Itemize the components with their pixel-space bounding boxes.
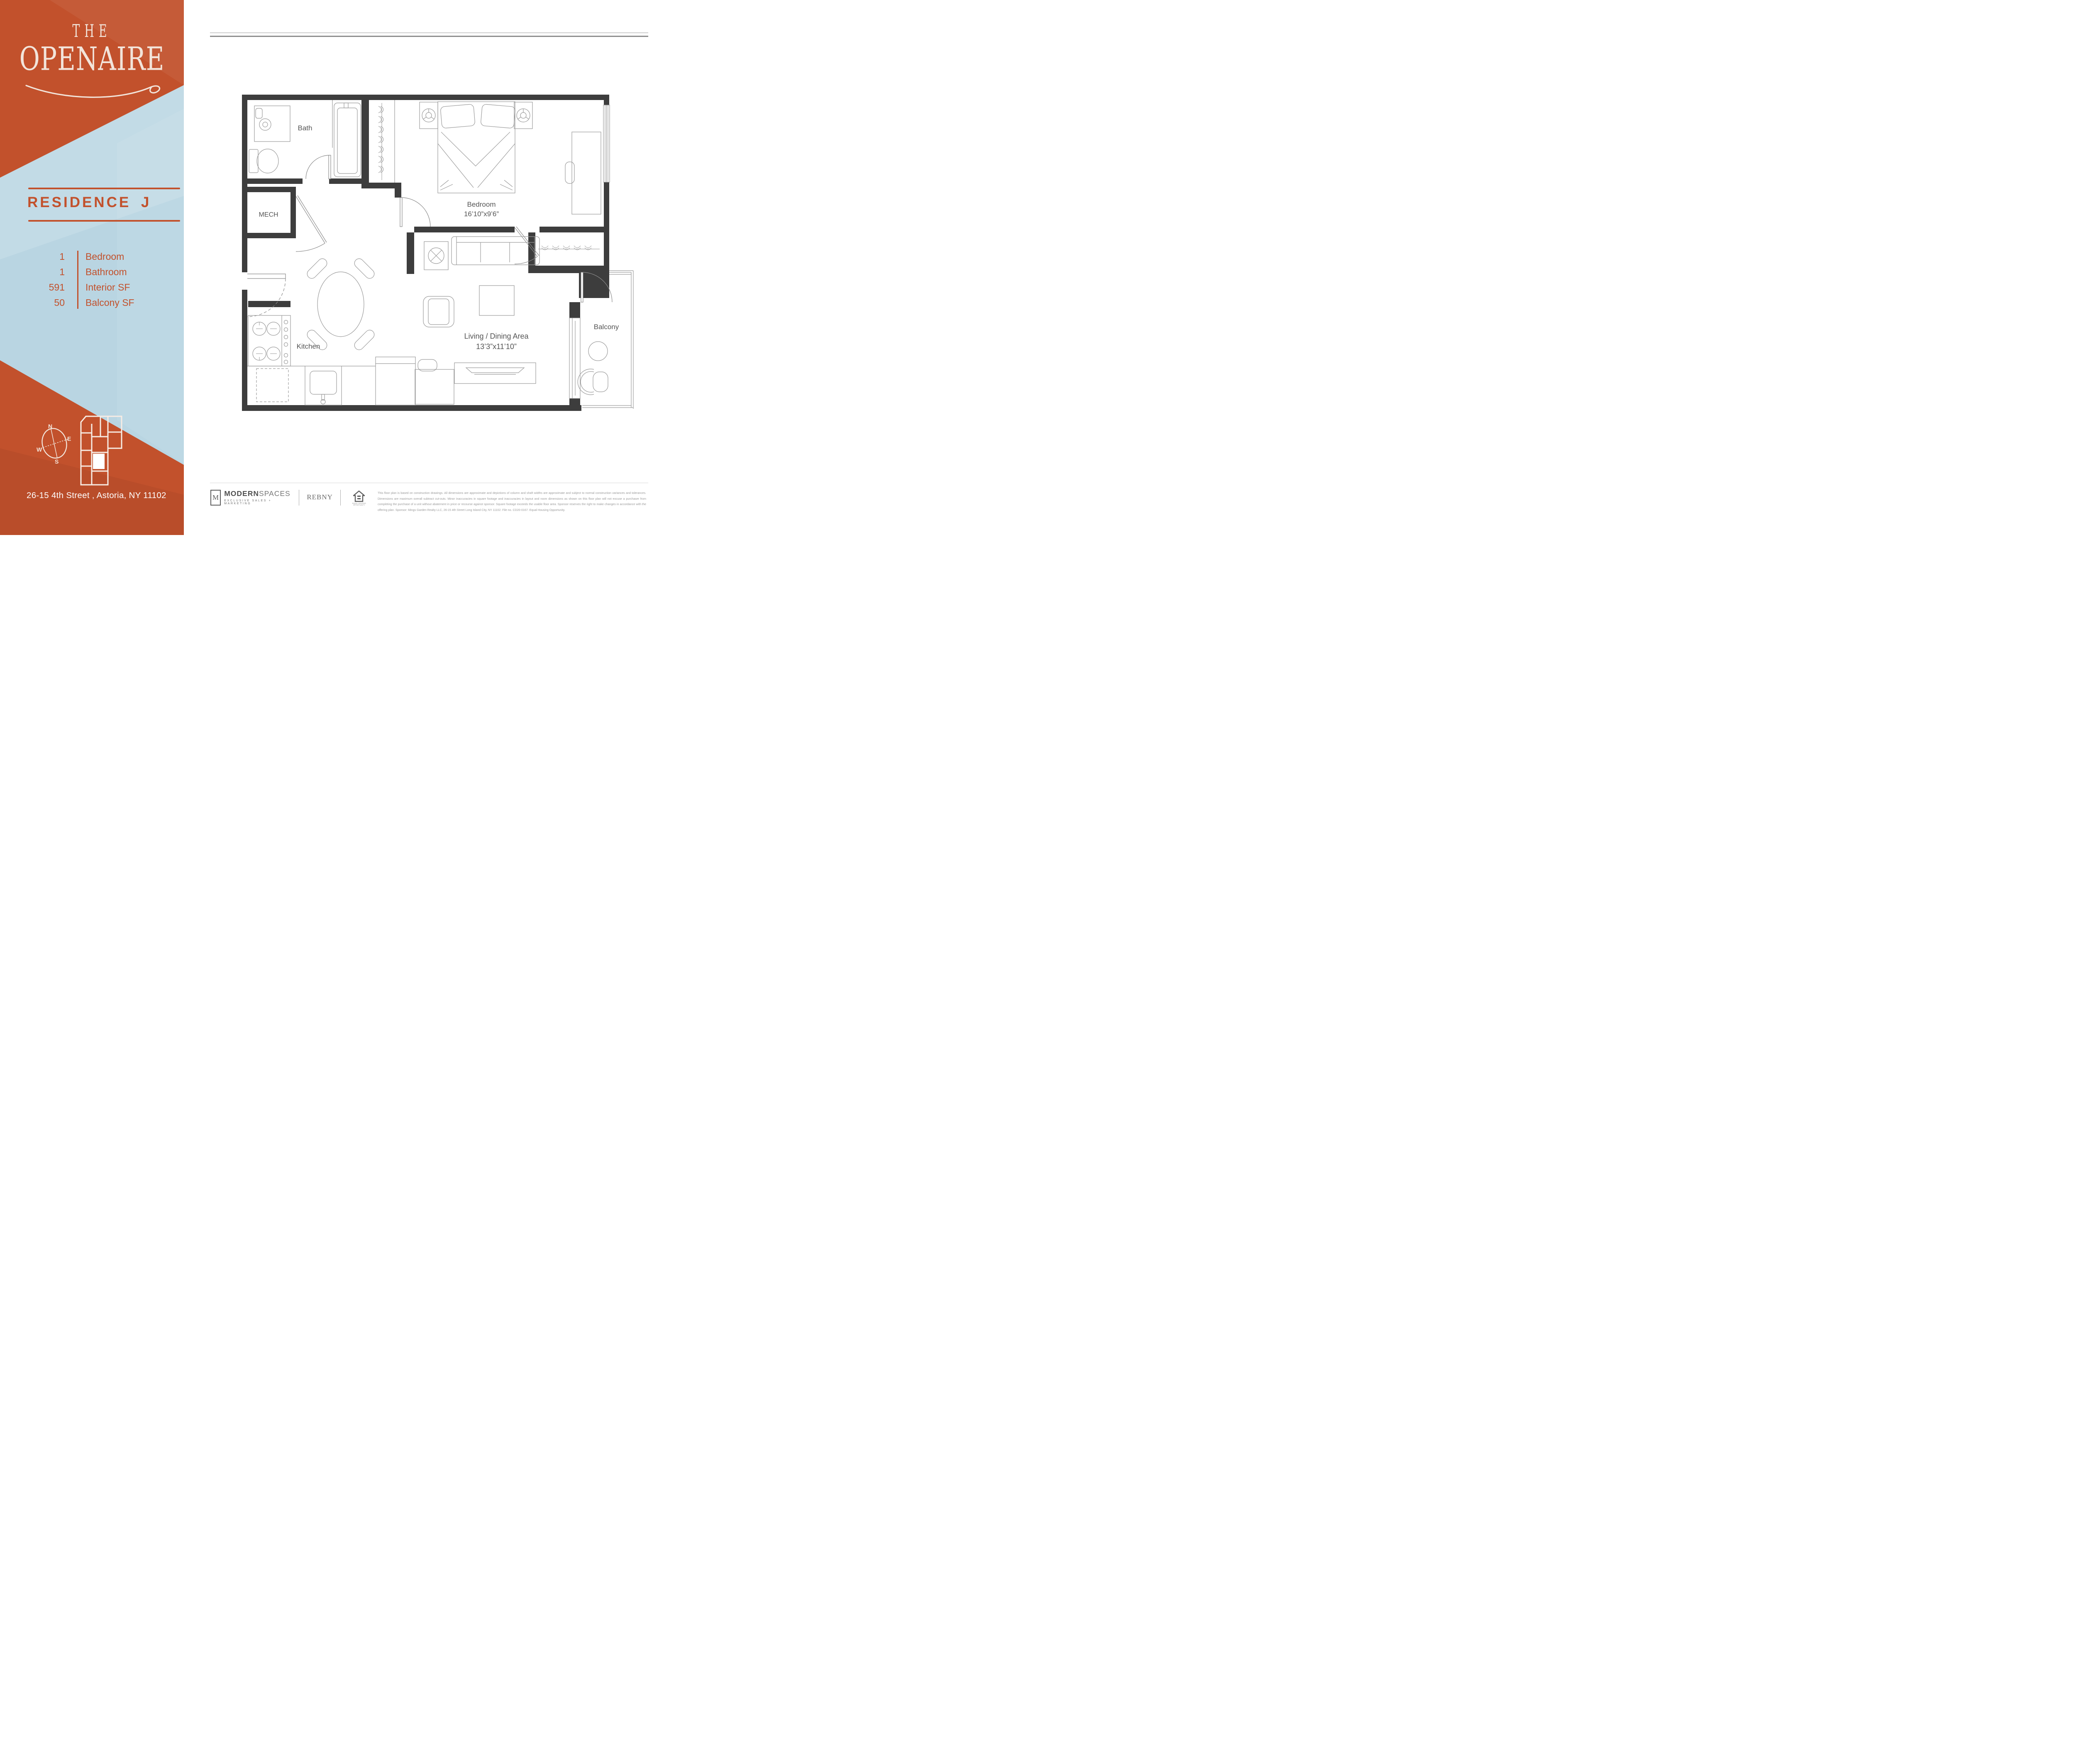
modernspaces-bold: MODERN: [224, 489, 259, 498]
stat-value: 50: [16, 297, 75, 308]
pillow: [481, 104, 515, 129]
title-rule-bottom: [28, 220, 180, 222]
footer-rule: [210, 483, 648, 483]
compass-n: N: [48, 423, 52, 430]
tv: [466, 368, 524, 374]
tv-console: [454, 363, 536, 384]
footer-divider: [299, 490, 299, 506]
compass-icon: N E W S: [37, 423, 72, 464]
bed: [438, 102, 515, 193]
sink-counter: [305, 366, 342, 405]
toilet-bowl: [257, 149, 278, 173]
stat-row-bathroom: 1 Bathroom: [16, 264, 153, 280]
blanket-fold: [441, 132, 510, 166]
refrigerator: [376, 357, 415, 405]
side-desk: [415, 369, 454, 404]
kitchen-sink: [310, 371, 337, 394]
sidebar: THE OPENAIRE RESIDENCE J 1 Bedroom 1 Bat…: [0, 0, 184, 535]
living-furniture: [415, 237, 539, 404]
stat-row-balcony-sf: 50 Balcony SF: [16, 295, 153, 310]
floorplan-sheet: THE OPENAIRE RESIDENCE J 1 Bedroom 1 Bat…: [0, 0, 650, 535]
armchair: [423, 296, 454, 327]
residence-title: RESIDENCE J: [27, 194, 181, 211]
bath-fixtures: [249, 103, 361, 177]
unit-j-highlight: [93, 454, 105, 469]
walls: [242, 95, 609, 411]
modernspaces-tagline: EXCLUSIVE SALES + MARKETING: [224, 499, 291, 505]
equal-housing-block: EQUAL HOUSING OPPORTUNITY: [348, 491, 370, 506]
label-bedroom-dims: 16’10”x9’6”: [464, 210, 499, 218]
modernspaces-light: SPACES: [259, 489, 290, 498]
bedroom-window: [603, 105, 610, 182]
stat-row-interior-sf: 591 Interior SF: [16, 280, 153, 295]
kitchen-fixtures: [247, 315, 415, 405]
sofa: [452, 237, 539, 265]
modernspaces-name: MODERNSPACES: [224, 490, 291, 498]
dining-chair: [353, 257, 376, 281]
stat-label: Bedroom: [75, 251, 124, 262]
dining-chair: [353, 328, 376, 352]
compass-e: E: [67, 435, 71, 442]
desk: [572, 132, 601, 214]
equal-housing-caption: EQUAL HOUSING OPPORTUNITY: [348, 503, 370, 506]
footer: M MODERNSPACES EXCLUSIVE SALES + MARKETI…: [210, 490, 646, 513]
label-mech: MECH: [259, 211, 278, 218]
coffee-table: [479, 286, 514, 315]
title-rule-top: [28, 188, 180, 189]
stat-label: Balcony SF: [75, 297, 134, 308]
dining-set: [305, 257, 376, 352]
stat-label: Bathroom: [75, 266, 127, 278]
label-bath: Bath: [298, 124, 312, 132]
equal-housing-icon: [353, 491, 365, 502]
compass-s: S: [55, 458, 59, 464]
building-logo: THE OPENAIRE: [0, 22, 184, 69]
bedroom-closet-hangers: [378, 103, 383, 180]
modernspaces-logo: M MODERNSPACES EXCLUSIVE SALES + MARKETI…: [210, 490, 291, 506]
bathtub: [334, 103, 361, 177]
building-key-plan: [80, 413, 125, 489]
stat-value: 1: [16, 251, 75, 262]
footer-divider: [340, 490, 341, 506]
dining-table: [317, 272, 364, 337]
desk-chair: [565, 162, 574, 183]
balcony-table: [588, 342, 608, 361]
rebny-logo: REBNY: [307, 493, 333, 501]
unit-stats: 1 Bedroom 1 Bathroom 591 Interior SF 50 …: [16, 249, 153, 310]
logo-the: THE: [0, 22, 184, 42]
label-bedroom: Bedroom: [467, 200, 496, 208]
compass-w: W: [37, 446, 42, 453]
pillow: [440, 104, 475, 129]
stat-row-bedroom: 1 Bedroom: [16, 249, 153, 264]
bedroom-furniture: [420, 102, 601, 214]
label-balcony: Balcony: [594, 323, 619, 331]
legal-disclaimer: This floor plan is based on construction…: [378, 491, 646, 513]
logo-openaire: OPENAIRE: [0, 40, 184, 78]
label-kitchen: Kitchen: [297, 342, 320, 350]
room-labels: Bath MECH Bedroom 16’10”x9’6” Kitchen Li…: [259, 124, 619, 351]
coat-closet-hangers: [538, 246, 600, 250]
stat-value: 1: [16, 266, 75, 278]
modernspaces-m-icon: M: [210, 490, 221, 506]
label-living: Living / Dining Area: [464, 332, 529, 340]
floor-plan-drawing: Bath MECH Bedroom 16’10”x9’6” Kitchen Li…: [242, 95, 636, 427]
logo-swash-flourish: [19, 83, 168, 100]
dining-chair: [305, 257, 329, 281]
vanity: [254, 106, 290, 142]
dishwasher: [256, 369, 288, 402]
label-living-dims: 13’3”x11’10”: [476, 342, 517, 351]
top-rule-dark: [210, 36, 648, 37]
building-address: 26-15 4th Street , Astoria, NY 11102: [27, 491, 166, 501]
top-rule-light: [210, 32, 648, 33]
stat-value: 591: [16, 282, 75, 293]
stats-divider: [77, 251, 78, 309]
stat-label: Interior SF: [75, 282, 130, 293]
